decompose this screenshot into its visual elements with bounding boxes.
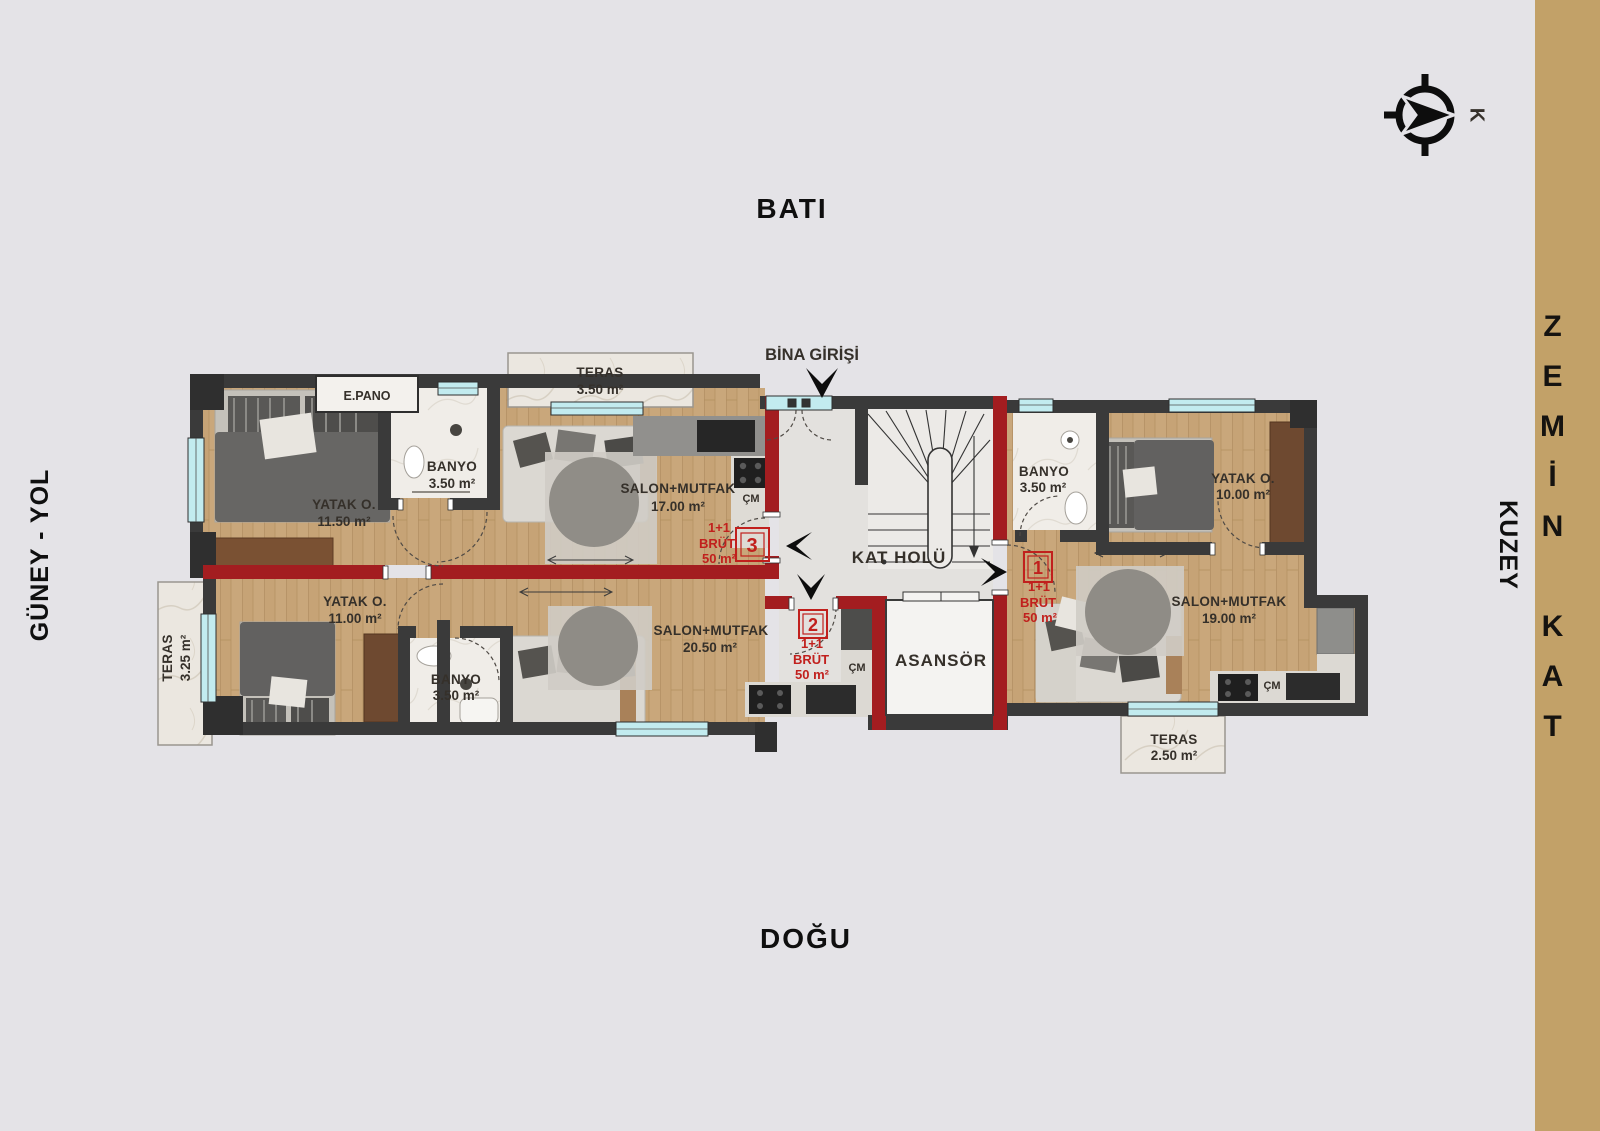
unit3-banyo-name: BANYO [427,459,477,474]
epano-label: E.PANO [344,389,391,403]
floor-strip: ZEMİN KAT [1535,0,1600,1131]
terrace-top-area: 3.50 m² [577,382,624,397]
terrace-bottom-right-name: TERAS [1150,732,1197,747]
unit2-yatak-area: 11.00 m² [328,611,382,626]
unit2-salon-name: SALON+MUTFAK [654,623,769,638]
unit3-number: 3 [746,535,757,557]
compass-north-letter: K [1466,108,1488,123]
unit3-banyo-area: 3.50 m² [429,476,476,491]
unit2-type: 1+1 [801,636,823,651]
unit1-banyo-area: 3.50 m² [1020,480,1067,495]
unit2-number: 2 [808,615,818,635]
unit3-brut: BRÜT [699,536,735,551]
unit1-area: 50 m² [1023,610,1058,625]
terrace-left-name: TERAS [160,634,175,681]
unit3-type: 1+1 [708,520,730,535]
unit1-yatak-name: YATAK O. [1211,471,1275,486]
direction-west: BATI [756,193,827,224]
unit2-cm-label: ÇM [848,662,865,674]
floor-plan-svg: K BATI DOĞU GÜNEY - YOL KUZEY BİNA GİRİŞ… [0,0,1600,1131]
unit2-banyo-name: BANYO [431,672,481,687]
unit1-salon-area: 19.00 m² [1202,611,1257,626]
hall-label: KAT HOLÜ [852,548,947,567]
unit3-salon-name: SALON+MUTFAK [621,481,736,496]
entrance-arrow-icon [806,368,838,398]
elevator-label: ASANSÖR [895,651,987,670]
unit3-salon-area: 17.00 m² [651,499,706,514]
unit1-cm-label: ÇM [1263,680,1280,692]
unit3-cm-label: ÇM [742,493,759,505]
unit3-yatak-name: YATAK O. [312,497,376,512]
direction-east: DOĞU [760,923,852,954]
unit2-salon-area: 20.50 m² [683,640,738,655]
terrace-left-area: 3.25 m² [178,634,193,681]
unit1-yatak-area: 10.00 m² [1216,487,1271,502]
unit1-banyo-name: BANYO [1019,464,1069,479]
floor-plan-page: { "directions": { "west": "BATI", "east"… [0,0,1600,1131]
entrance-label: BİNA GİRİŞİ [765,346,859,364]
unit3-yatak-area: 11.50 m² [317,514,371,529]
unit2-area: 50 m² [795,667,830,682]
unit1-brut: BRÜT [1020,595,1056,610]
terrace-top-name: TERAS [576,365,623,380]
unit1-number: 1 [1033,558,1043,578]
unit2-banyo-area: 3.50 m² [433,688,480,703]
unit1-type: 1+1 [1028,579,1050,594]
unit1-salon-name: SALON+MUTFAK [1172,594,1287,609]
unit2-brut: BRÜT [793,652,829,667]
direction-north: KUZEY [1494,500,1522,590]
unit2-yatak-name: YATAK O. [323,594,387,609]
terrace-bottom-right-area: 2.50 m² [1151,748,1198,763]
direction-south-road: GÜNEY - YOL [25,469,54,642]
unit3-area: 50 m² [702,551,737,566]
floor-strip-label: ZEMİN KAT [1535,310,1600,760]
compass-icon: K [1384,74,1488,156]
